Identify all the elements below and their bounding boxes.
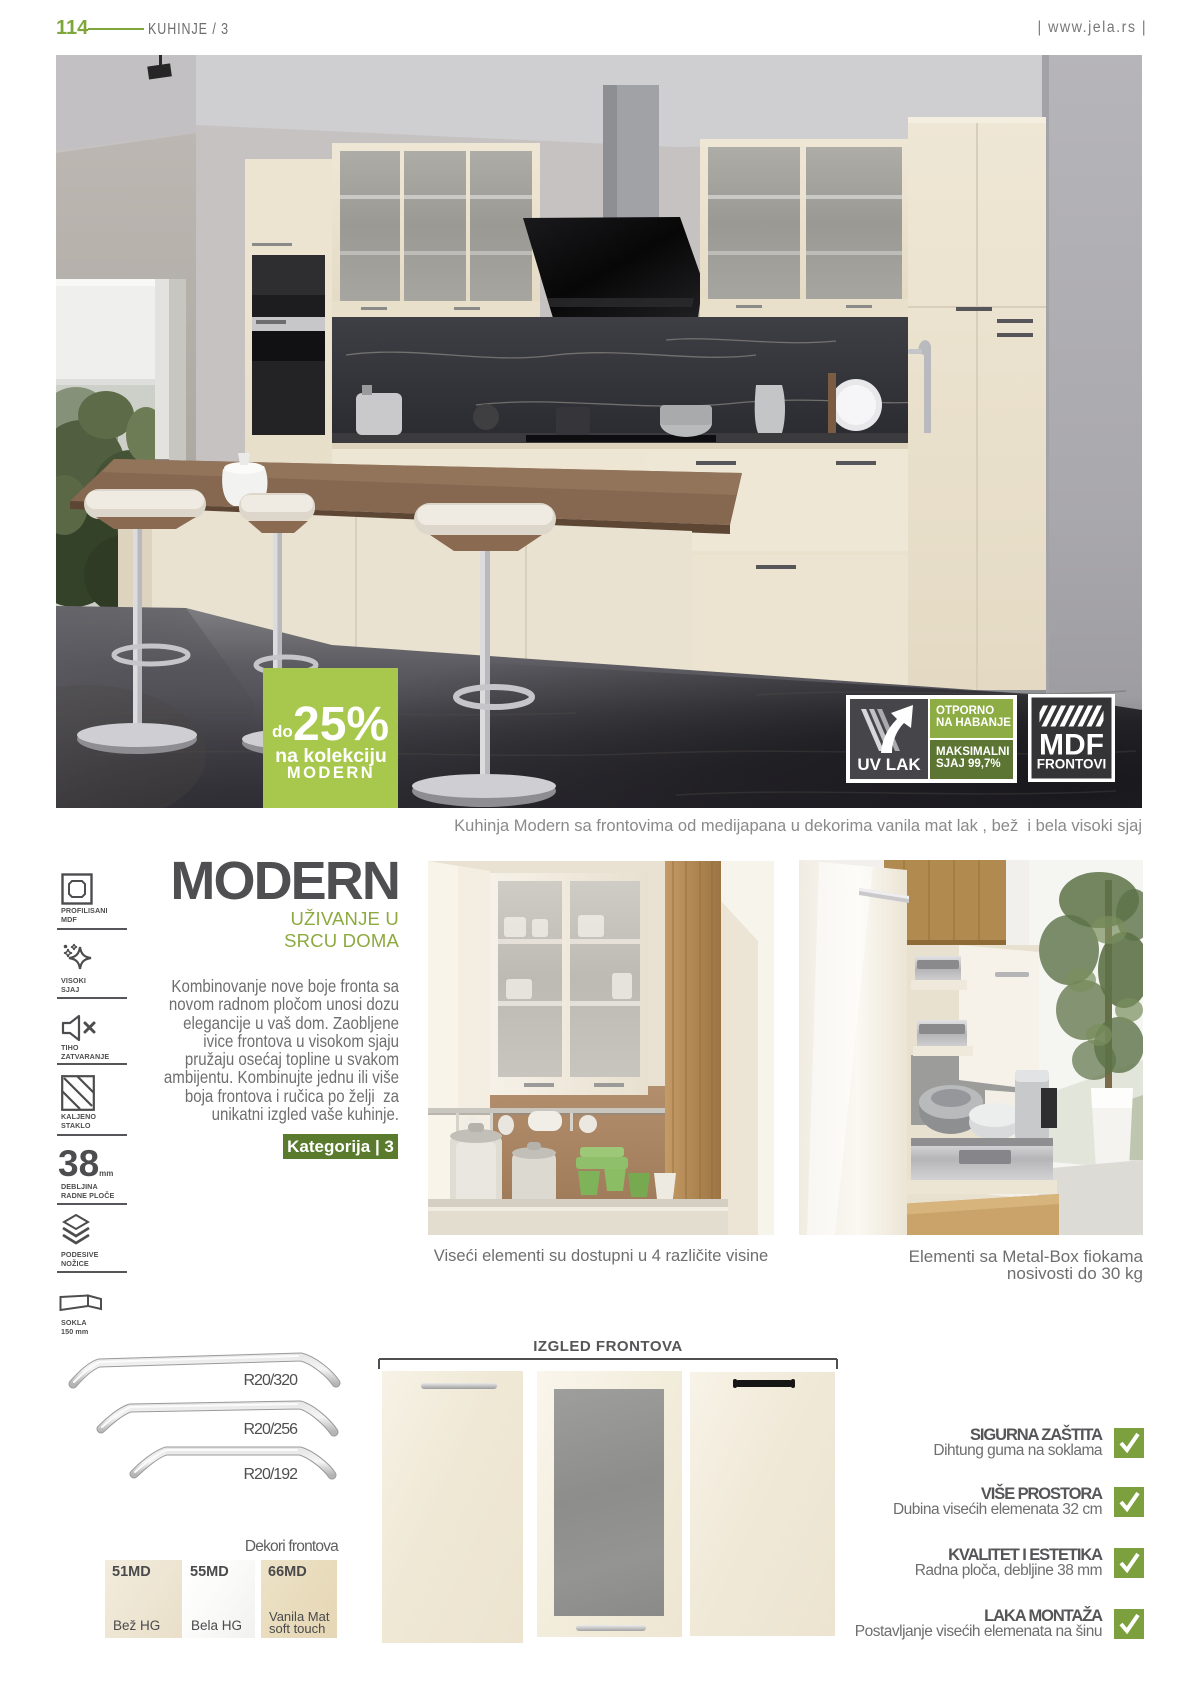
svg-text:MAKSIMALNI: MAKSIMALNI [936, 746, 1009, 758]
svg-text:MODERN: MODERN [287, 764, 375, 782]
svg-text:25%: 25% [293, 698, 389, 751]
svg-text:NA HABANJE: NA HABANJE [936, 717, 1011, 729]
svg-text:FRONTOVI: FRONTOVI [1037, 757, 1107, 772]
svg-text:do: do [272, 722, 293, 741]
svg-text:UV LAK: UV LAK [857, 755, 921, 774]
svg-text:SJAJ 99,7%: SJAJ 99,7% [936, 758, 1001, 770]
svg-text:OTPORNO: OTPORNO [936, 705, 994, 717]
